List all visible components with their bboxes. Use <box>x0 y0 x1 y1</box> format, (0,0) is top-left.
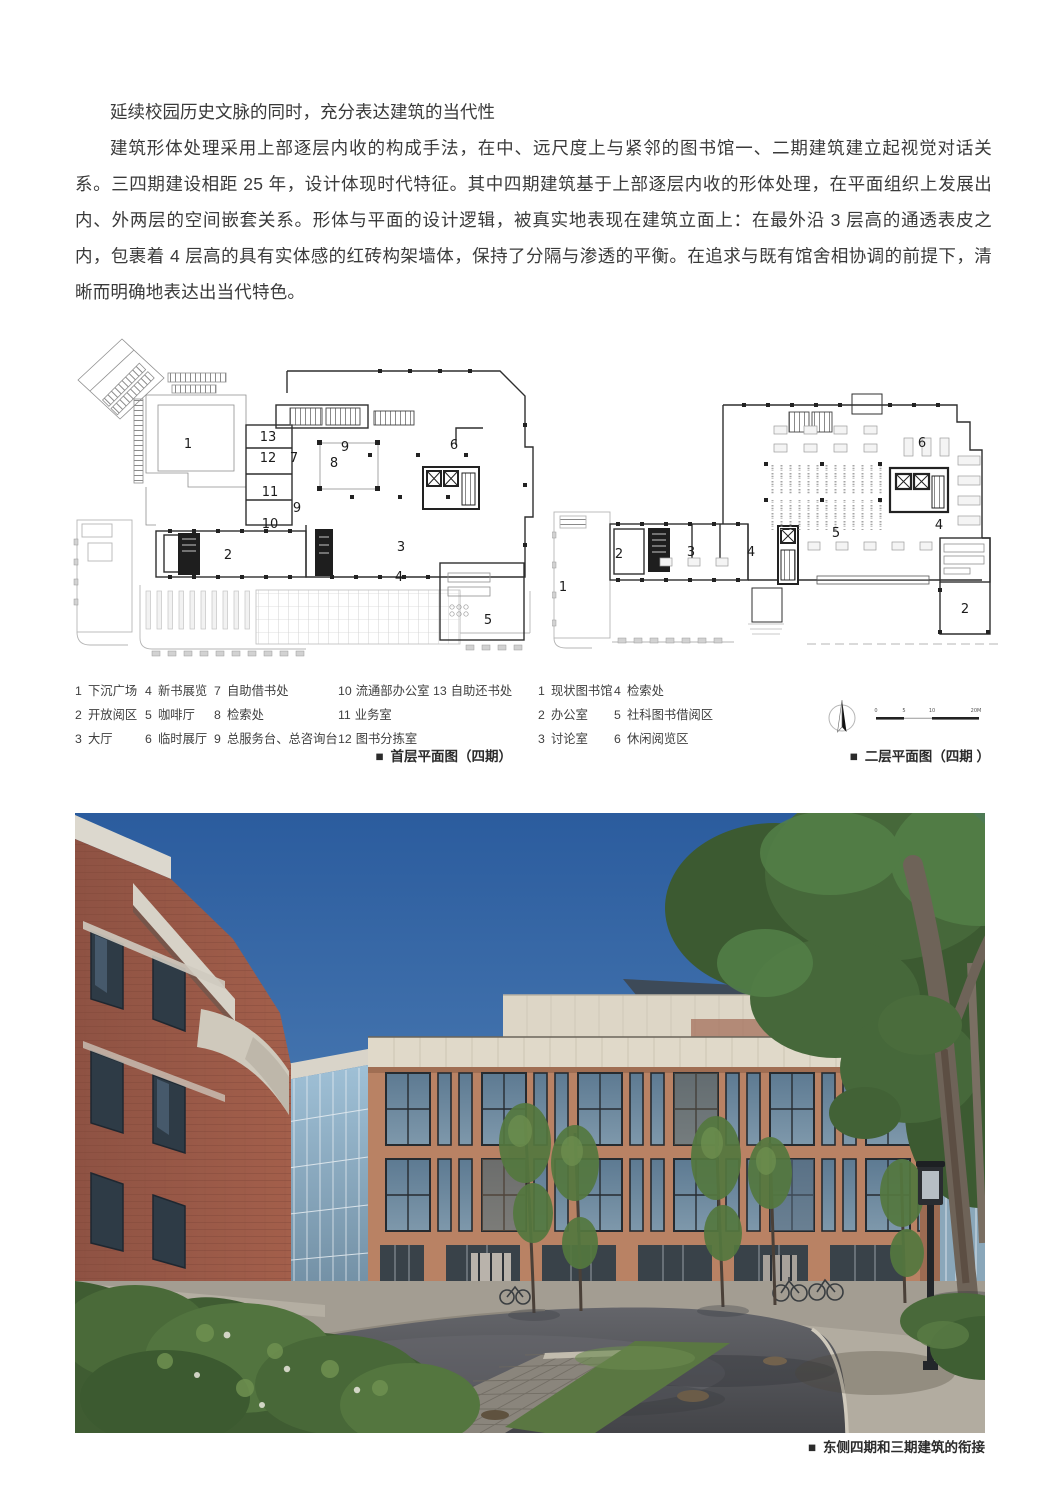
room-mark: 10 <box>262 517 279 532</box>
room-mark: 1 <box>559 580 567 595</box>
article-paragraph: 建筑形体处理采用上部逐层内收的构成手法，在中、远尺度上与紧邻的图书馆一、二期建筑… <box>75 130 992 310</box>
room-mark: 5 <box>832 526 840 541</box>
legend-item: 13自助还书处 <box>433 679 512 703</box>
room-mark: 8 <box>330 456 338 471</box>
room-mark: 4 <box>747 545 755 560</box>
legend-first-floor-col4: 10流通部办公室 11业务室 12图书分拣室 <box>338 679 429 751</box>
room-mark: 6 <box>918 436 926 451</box>
room-mark: 2 <box>961 602 969 617</box>
legend-item: 1现状图书馆 <box>538 679 613 703</box>
room-mark: 2 <box>615 547 623 562</box>
magazine-page: 延续校园历史文脉的同时，充分表达建筑的当代性 建筑形体处理采用上部逐层内收的构成… <box>0 0 1061 1500</box>
article-heading: 延续校园历史文脉的同时，充分表达建筑的当代性 <box>75 94 992 130</box>
legend-item: 4检索处 <box>614 679 713 703</box>
legend-item: 2办公室 <box>538 703 613 727</box>
legend-second-floor-col1: 1现状图书馆 2办公室 3讨论室 <box>538 679 613 751</box>
room-mark: 1 <box>184 437 192 452</box>
room-mark: 9 <box>341 440 349 455</box>
room-mark: 5 <box>484 613 492 628</box>
legend-second-floor-col2: 4检索处 5社科图书借阅区 6休闲阅览区 <box>614 679 713 751</box>
room-mark: 11 <box>262 485 279 500</box>
room-mark: 7 <box>290 451 298 466</box>
article-text-block: 延续校园历史文脉的同时，充分表达建筑的当代性 建筑形体处理采用上部逐层内收的构成… <box>75 94 992 310</box>
legend-item: 1下沉广场 <box>75 679 137 703</box>
legend-item: 5社科图书借阅区 <box>614 703 713 727</box>
room-mark: 3 <box>397 540 405 555</box>
room-mark: 3 <box>687 545 695 560</box>
room-mark: 12 <box>260 451 277 466</box>
scale-bar: 0 5 10 20M <box>868 702 988 728</box>
glass-link-atrium <box>281 1049 368 1311</box>
legend-first-floor-col2: 4新书展览 5咖啡厅 6临时展厅 <box>145 679 207 751</box>
north-arrow-icon <box>824 696 860 738</box>
caption-square-marker: ■ <box>375 749 383 764</box>
second-floor-plan-drawing: 6 2 3 4 5 4 1 2 <box>552 392 1002 652</box>
caption-square-marker: ■ <box>850 749 858 764</box>
room-mark: 9 <box>293 501 301 516</box>
caption-second-floor-plan: ■二层平面图（四期 ） <box>548 745 990 765</box>
legend-item: 8检索处 <box>214 703 338 727</box>
legend-item: 10流通部办公室 <box>338 679 429 703</box>
legend-item: 11业务室 <box>338 703 429 727</box>
scale-tick-label: 20M <box>971 708 982 714</box>
legend-first-floor-col3: 7自助借书处 8检索处 9总服务台、总咨询台 <box>214 679 338 751</box>
room-mark: 6 <box>450 438 458 453</box>
caption-square-marker: ■ <box>808 1440 816 1455</box>
legend-first-floor-col5: 13自助还书处 <box>433 679 512 703</box>
legend-item: 5咖啡厅 <box>145 703 207 727</box>
room-mark: 2 <box>224 548 232 563</box>
caption-photo: ■东侧四期和三期建筑的衔接 <box>75 1436 985 1456</box>
first-floor-plan-drawing: 1 13 12 7 9 8 6 11 9 10 2 3 4 5 <box>68 333 543 668</box>
legend-first-floor-col1: 1下沉广场 2开放阅区 3大厅 <box>75 679 137 751</box>
building-photo <box>75 813 985 1433</box>
scale-tick-label: 0 <box>874 708 877 714</box>
legend-item: 4新书展览 <box>145 679 207 703</box>
legend-item: 7自助借书处 <box>214 679 338 703</box>
room-mark: 13 <box>260 430 277 445</box>
room-mark: 4 <box>935 518 943 533</box>
room-mark: 4 <box>395 570 403 585</box>
scale-tick-label: 10 <box>929 708 935 714</box>
scale-tick-label: 5 <box>902 708 905 714</box>
caption-first-floor-plan: ■首层平面图（四期） <box>70 745 512 765</box>
legend-item: 2开放阅区 <box>75 703 137 727</box>
